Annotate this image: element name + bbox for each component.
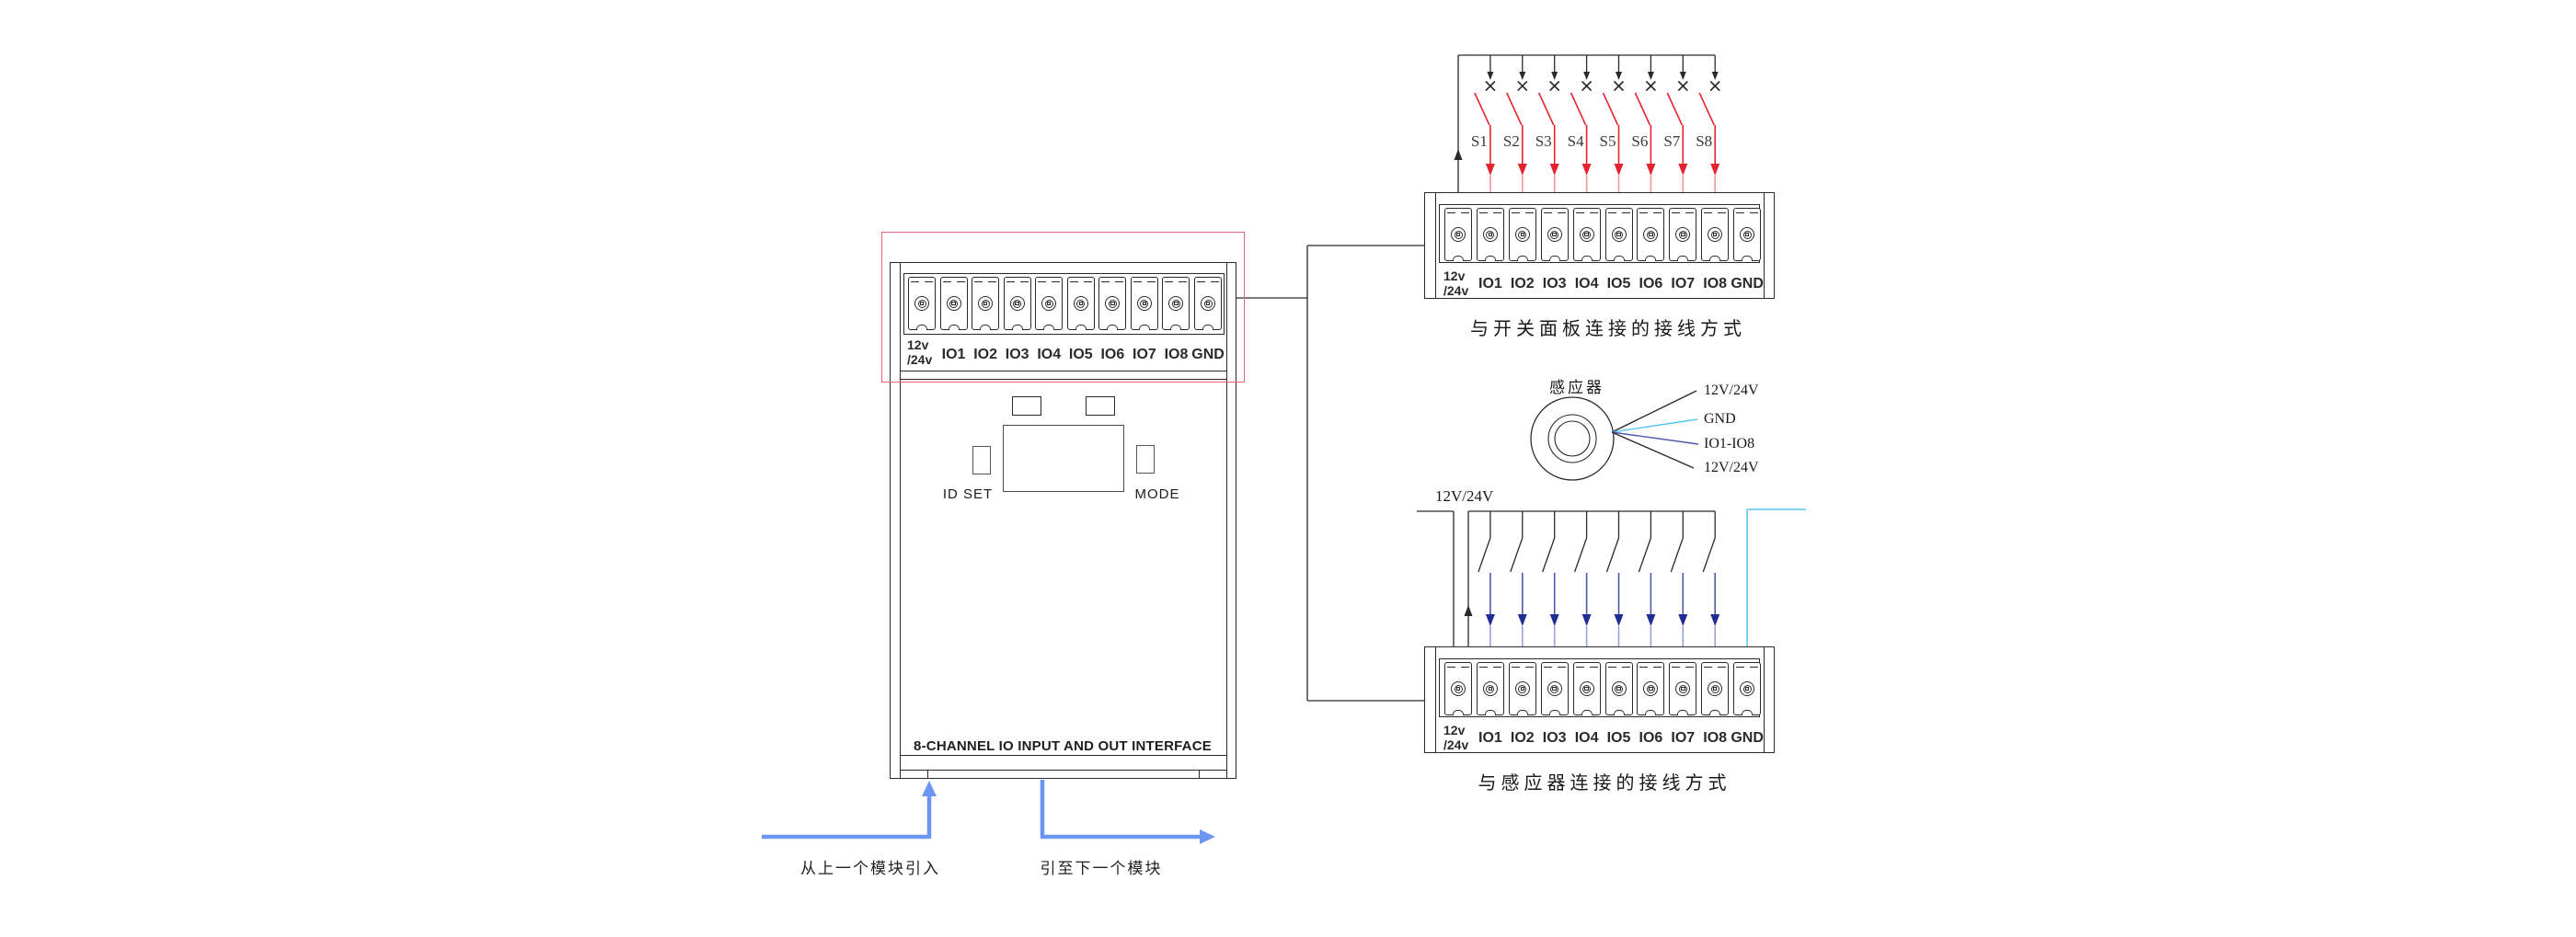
terminal-screw xyxy=(1483,227,1498,242)
terminal-notch xyxy=(1075,325,1087,330)
sensor-block-terminal-cell xyxy=(1701,662,1729,715)
switch-label: S7 xyxy=(1651,132,1680,151)
module-terminal-cell xyxy=(972,277,999,330)
module-power-label: 12v/24v xyxy=(907,337,932,367)
x-mark xyxy=(1486,82,1495,91)
up-arrowhead xyxy=(1465,605,1473,616)
switch-block-terminal-cell xyxy=(1733,208,1761,261)
terminal-tab xyxy=(1685,212,1694,213)
x-mark xyxy=(1646,82,1655,91)
down-arrowhead xyxy=(1551,72,1558,80)
switch-contact-wire xyxy=(1699,93,1714,125)
terminal-screw xyxy=(1168,296,1183,311)
x-mark xyxy=(1678,82,1687,91)
sensor-block-power-label: 12v/24v xyxy=(1443,723,1468,752)
down-arrowhead xyxy=(1712,72,1719,80)
sensor-block-terminal-cell xyxy=(1733,662,1761,715)
terminal-tab xyxy=(1052,281,1060,282)
terminal-tab xyxy=(1479,212,1488,213)
x-mark xyxy=(1615,82,1624,91)
navy-arrowhead xyxy=(1518,614,1527,626)
sensor-block-io-label: IO1 xyxy=(1478,730,1502,747)
terminal-tab xyxy=(911,281,919,282)
down-arrowhead xyxy=(1519,72,1525,80)
terminal-tab xyxy=(1493,667,1501,668)
red-arrowhead xyxy=(1486,164,1495,176)
terminal-tab xyxy=(1750,667,1758,668)
wiring-layer xyxy=(0,0,2576,937)
switch-block-terminal-cell xyxy=(1701,208,1729,261)
sensor-wire-label: GND xyxy=(1704,411,1736,428)
switch-contact-wire xyxy=(1507,93,1522,125)
switch-block-io-label: IO4 xyxy=(1575,276,1599,292)
terminal-tab xyxy=(1038,281,1046,282)
terminal-notch xyxy=(1614,710,1625,715)
terminal-tab xyxy=(1493,212,1501,213)
terminal-notch xyxy=(1677,710,1688,715)
sensor-circle xyxy=(1531,397,1614,480)
module-bottom-tick-left xyxy=(927,770,928,779)
sensor-fan-wire xyxy=(1612,391,1696,432)
sensor-wire-label: IO1-IO8 xyxy=(1704,436,1754,452)
terminal-screw xyxy=(1010,296,1025,311)
terminal-notch xyxy=(1485,710,1496,715)
x-mark xyxy=(1646,82,1655,91)
module-io-label: IO2 xyxy=(973,347,997,363)
terminal-screw xyxy=(1105,296,1120,311)
terminal-screw xyxy=(1740,681,1754,696)
terminal-notch xyxy=(1614,256,1625,261)
sensor-block-terminal-cell xyxy=(1444,662,1472,715)
sensor-label: 感应器 xyxy=(1549,374,1604,397)
sensor-contact-wire xyxy=(1478,538,1490,572)
terminal-tab xyxy=(1672,667,1680,668)
terminal-tab xyxy=(1558,667,1566,668)
down-arrowhead xyxy=(1583,72,1590,80)
sensor-block-right-rail xyxy=(1764,646,1765,753)
switch-block-io-label: IO7 xyxy=(1671,276,1695,292)
terminal-tab xyxy=(925,281,933,282)
sensor-contact-wire xyxy=(1543,538,1555,572)
terminal-tab xyxy=(1479,667,1488,668)
terminal-screw xyxy=(947,296,961,311)
module-terminal-cell xyxy=(1131,277,1158,330)
module-bottom-divider xyxy=(900,755,1226,756)
terminal-notch xyxy=(1677,256,1688,261)
module-io-label: IO4 xyxy=(1037,347,1061,363)
terminal-tab xyxy=(1020,281,1029,282)
terminal-notch xyxy=(1107,325,1118,330)
terminal-tab xyxy=(1525,212,1534,213)
flow-right-arrowhead xyxy=(1200,829,1215,844)
sensor-wire-label: 12V/24V xyxy=(1704,460,1759,476)
terminal-tab xyxy=(1006,281,1015,282)
x-mark xyxy=(1550,82,1559,91)
terminal-tab xyxy=(1544,212,1552,213)
switch-contact-wire xyxy=(1667,93,1682,125)
mode-label: MODE xyxy=(1135,486,1180,502)
terminal-tab xyxy=(957,281,965,282)
switch-block-gnd-label: GND xyxy=(1731,276,1764,292)
sensor-block-io-label: IO5 xyxy=(1607,730,1631,747)
terminal-tab xyxy=(1639,667,1648,668)
terminal-screw xyxy=(1612,681,1627,696)
x-mark xyxy=(1486,82,1495,91)
sensor-fan-wire xyxy=(1612,432,1698,444)
switch-block-terminal-cell xyxy=(1669,208,1696,261)
terminal-notch xyxy=(1549,710,1560,715)
module-display-window xyxy=(1003,425,1124,492)
terminal-tab xyxy=(1608,212,1616,213)
terminal-notch xyxy=(1742,256,1753,261)
terminal-tab xyxy=(1084,281,1092,282)
x-mark xyxy=(1582,82,1592,91)
terminal-screw xyxy=(1740,227,1754,242)
terminal-tab xyxy=(1736,212,1744,213)
terminal-notch xyxy=(1742,710,1753,715)
terminal-tab xyxy=(988,281,996,282)
terminal-screw xyxy=(1483,681,1498,696)
down-arrowhead xyxy=(1487,72,1493,80)
module-io-label: IO5 xyxy=(1069,347,1093,363)
terminal-notch xyxy=(1709,256,1720,261)
sensor-contact-wire xyxy=(1575,538,1587,572)
switch-block-io-label: IO2 xyxy=(1511,276,1535,292)
terminal-notch xyxy=(1517,256,1528,261)
flow-out-label: 引至下一个模块 xyxy=(1041,855,1163,878)
terminal-tab xyxy=(1653,667,1662,668)
switch-label: S4 xyxy=(1556,132,1584,151)
wiring-diagram-canvas: ID SET MODE 8-CHANNEL IO INPUT AND OUT I… xyxy=(0,0,2576,937)
terminal-screw xyxy=(1515,681,1530,696)
module-io-label: IO7 xyxy=(1133,347,1156,363)
x-mark xyxy=(1710,82,1719,91)
module-terminal-cell xyxy=(1035,277,1063,330)
sensor-contact-wire xyxy=(1511,538,1523,572)
sensor-contact-wire xyxy=(1671,538,1683,572)
red-arrowhead xyxy=(1615,164,1624,176)
terminal-tab xyxy=(1590,667,1598,668)
switch-block-terminal-cell xyxy=(1444,208,1472,261)
terminal-tab xyxy=(1461,667,1469,668)
switch-label: S2 xyxy=(1491,132,1520,151)
terminal-tab xyxy=(1447,212,1455,213)
switch-block-terminal-cell xyxy=(1637,208,1664,261)
terminal-tab xyxy=(1608,667,1616,668)
switch-contact-wire xyxy=(1604,93,1618,125)
switch-label: S8 xyxy=(1684,132,1712,151)
terminal-tab xyxy=(1704,667,1712,668)
red-arrowhead xyxy=(1646,164,1655,176)
sensor-block-io-label: IO6 xyxy=(1639,730,1662,747)
module-io-label: IO3 xyxy=(1006,347,1029,363)
terminal-tab xyxy=(943,281,951,282)
switch-block-terminal-cell xyxy=(1541,208,1569,261)
sensor-block-gnd-label: GND xyxy=(1731,730,1764,747)
module-terminal-cell xyxy=(1098,277,1126,330)
switch-label: S6 xyxy=(1619,132,1648,151)
terminal-notch xyxy=(1485,256,1496,261)
module-terminal-cell xyxy=(908,277,936,330)
module-bottom-label: 8-CHANNEL IO INPUT AND OUT INTERFACE xyxy=(914,738,1212,754)
terminal-notch xyxy=(1645,710,1656,715)
terminal-tab xyxy=(1147,281,1156,282)
sensor-bus-label: 12V/24V xyxy=(1435,487,1493,506)
sensor-contact-wire xyxy=(1703,538,1715,572)
switch-block-left-rail xyxy=(1435,192,1436,299)
terminal-tab xyxy=(1558,212,1566,213)
terminal-tab xyxy=(1070,281,1078,282)
sensor-panel-caption: 与感应器连接的接线方式 xyxy=(1478,768,1731,794)
terminal-tab xyxy=(1115,281,1123,282)
x-mark xyxy=(1582,82,1592,91)
terminal-notch xyxy=(1581,256,1593,261)
navy-arrowhead xyxy=(1678,614,1687,626)
module-io-label: IO8 xyxy=(1165,347,1189,363)
down-arrowhead xyxy=(1648,72,1654,80)
switch-block-terminal-cell xyxy=(1573,208,1601,261)
terminal-tab xyxy=(1512,667,1520,668)
terminal-screw xyxy=(1643,227,1658,242)
terminal-screw xyxy=(1612,227,1627,242)
terminal-tab xyxy=(1685,667,1694,668)
id-set-button[interactable] xyxy=(972,446,991,474)
terminal-tab xyxy=(1718,667,1726,668)
terminal-tab xyxy=(1447,667,1455,668)
terminal-screw xyxy=(914,296,929,311)
navy-arrowhead xyxy=(1710,614,1719,626)
terminal-tab xyxy=(1736,667,1744,668)
terminal-tab xyxy=(1704,212,1712,213)
terminal-notch xyxy=(1453,710,1464,715)
switch-panel-caption: 与开关面板连接的接线方式 xyxy=(1470,314,1746,340)
terminal-tab xyxy=(1622,667,1630,668)
switch-block-io-label: IO6 xyxy=(1639,276,1662,292)
terminal-tab xyxy=(1133,281,1142,282)
red-arrowhead xyxy=(1678,164,1687,176)
x-mark xyxy=(1678,82,1687,91)
terminal-screw xyxy=(1708,227,1722,242)
terminal-screw xyxy=(1074,296,1088,311)
module-terminal-cell xyxy=(1067,277,1095,330)
module-io-label: IO1 xyxy=(942,347,966,363)
switch-block-terminal-cell xyxy=(1509,208,1536,261)
terminal-tab xyxy=(1197,281,1205,282)
terminal-tab xyxy=(1165,281,1173,282)
terminal-notch xyxy=(1453,256,1464,261)
switch-contact-wire xyxy=(1635,93,1650,125)
terminal-screw xyxy=(978,296,993,311)
sensor-block-io-label: IO7 xyxy=(1671,730,1695,747)
module-terminal-cell xyxy=(940,277,968,330)
module-bottom-tick-right xyxy=(1199,770,1200,779)
terminal-tab xyxy=(1512,212,1520,213)
terminal-tab xyxy=(1622,212,1630,213)
switch-label: S1 xyxy=(1459,132,1488,151)
terminal-screw xyxy=(1643,681,1658,696)
switch-label: S3 xyxy=(1524,132,1552,151)
terminal-screw xyxy=(1580,681,1594,696)
module-vent-slot-right xyxy=(1086,396,1115,416)
terminal-notch xyxy=(1581,710,1593,715)
sensor-block-io-label: IO8 xyxy=(1703,730,1727,747)
mode-button[interactable] xyxy=(1136,445,1155,474)
down-arrowhead xyxy=(1680,72,1686,80)
sensor-wire-label: 12V/24V xyxy=(1704,383,1759,399)
terminal-tab xyxy=(1653,212,1662,213)
terminal-tab xyxy=(1544,667,1552,668)
switch-contact-wire xyxy=(1571,93,1586,125)
x-mark xyxy=(1518,82,1527,91)
navy-arrowhead xyxy=(1646,614,1655,626)
terminal-notch xyxy=(1709,710,1720,715)
terminal-notch xyxy=(1170,325,1181,330)
terminal-tab xyxy=(1576,212,1584,213)
sensor-contact-wire xyxy=(1639,538,1650,572)
sensor-circle xyxy=(1548,415,1596,463)
red-arrowhead xyxy=(1582,164,1592,176)
terminal-notch xyxy=(1012,325,1023,330)
terminal-tab xyxy=(1590,212,1598,213)
terminal-screw xyxy=(1451,681,1466,696)
navy-arrowhead xyxy=(1582,614,1592,626)
terminal-tab xyxy=(1101,281,1110,282)
module-io-label: IO6 xyxy=(1100,347,1124,363)
switch-label: S5 xyxy=(1588,132,1616,151)
terminal-screw xyxy=(1580,227,1594,242)
sensor-block-terminal-cell xyxy=(1509,662,1536,715)
terminal-screw xyxy=(1547,227,1562,242)
terminal-notch xyxy=(1549,256,1560,261)
terminal-tab xyxy=(1639,212,1648,213)
terminal-notch xyxy=(916,325,927,330)
sensor-contact-wire xyxy=(1607,538,1619,572)
flow-in-label: 从上一个模块引入 xyxy=(800,855,940,878)
id-set-label: ID SET xyxy=(943,486,993,502)
terminal-tab xyxy=(974,281,983,282)
sensor-block-terminal-cell xyxy=(1605,662,1633,715)
sensor-block-io-label: IO3 xyxy=(1543,730,1567,747)
red-arrowhead xyxy=(1710,164,1719,176)
switch-block-terminal-cell xyxy=(1605,208,1633,261)
down-arrowhead xyxy=(1616,72,1622,80)
module-vent-slot-left xyxy=(1012,396,1041,416)
terminal-notch xyxy=(980,325,991,330)
terminal-tab xyxy=(1179,281,1187,282)
red-arrowhead xyxy=(1518,164,1527,176)
switch-block-io-label: IO5 xyxy=(1607,276,1631,292)
terminal-screw xyxy=(1515,227,1530,242)
terminal-screw xyxy=(1675,681,1690,696)
terminal-tab xyxy=(1750,212,1758,213)
terminal-tab xyxy=(1461,212,1469,213)
sensor-block-terminal-cell xyxy=(1477,662,1504,715)
sensor-block-left-rail xyxy=(1435,646,1436,753)
switch-block-terminal-cell xyxy=(1477,208,1504,261)
switch-block-io-label: IO3 xyxy=(1543,276,1567,292)
terminal-tab xyxy=(1576,667,1584,668)
terminal-notch xyxy=(1139,325,1150,330)
sensor-circle xyxy=(1555,421,1590,456)
switch-block-power-label: 12v/24v xyxy=(1443,269,1468,298)
terminal-tab xyxy=(1525,667,1534,668)
terminal-screw xyxy=(1547,681,1562,696)
switch-contact-wire xyxy=(1475,93,1489,125)
terminal-notch xyxy=(1517,710,1528,715)
switch-block-right-rail xyxy=(1764,192,1765,299)
terminal-notch xyxy=(1202,325,1213,330)
sensor-block-terminal-cell xyxy=(1669,662,1696,715)
module-terminal-cell xyxy=(1162,277,1190,330)
sensor-block-terminal-cell xyxy=(1637,662,1664,715)
x-mark xyxy=(1615,82,1624,91)
terminal-tab xyxy=(1718,212,1726,213)
module-gnd-label: GND xyxy=(1191,347,1225,363)
x-mark xyxy=(1710,82,1719,91)
terminal-notch xyxy=(949,325,960,330)
switch-contact-wire xyxy=(1539,93,1554,125)
module-terminal-cell xyxy=(1194,277,1222,330)
terminal-tab xyxy=(1211,281,1219,282)
x-mark xyxy=(1550,82,1559,91)
terminal-screw xyxy=(1675,227,1690,242)
navy-arrowhead xyxy=(1550,614,1559,626)
switch-block-io-label: IO8 xyxy=(1703,276,1727,292)
terminal-notch xyxy=(1645,256,1656,261)
terminal-screw xyxy=(1137,296,1152,311)
flow-up-arrowhead xyxy=(922,781,937,796)
navy-arrowhead xyxy=(1486,614,1495,626)
sensor-block-io-label: IO2 xyxy=(1511,730,1535,747)
sensor-fan-wire xyxy=(1612,419,1697,432)
terminal-screw xyxy=(1451,227,1466,242)
module-terminal-cell xyxy=(1004,277,1031,330)
sensor-block-terminal-cell xyxy=(1573,662,1601,715)
module-bottom-rail xyxy=(900,770,1226,771)
sensor-block-io-label: IO4 xyxy=(1575,730,1599,747)
sensor-fan-wire xyxy=(1612,432,1694,468)
x-mark xyxy=(1518,82,1527,91)
terminal-tab xyxy=(1672,212,1680,213)
terminal-screw xyxy=(1708,681,1722,696)
terminal-notch xyxy=(1043,325,1054,330)
terminal-screw xyxy=(1201,296,1215,311)
switch-block-io-label: IO1 xyxy=(1478,276,1502,292)
terminal-highlight-box xyxy=(881,232,1245,383)
terminal-screw xyxy=(1041,296,1056,311)
navy-arrowhead xyxy=(1615,614,1624,626)
red-arrowhead xyxy=(1550,164,1559,176)
sensor-block-terminal-cell xyxy=(1541,662,1569,715)
